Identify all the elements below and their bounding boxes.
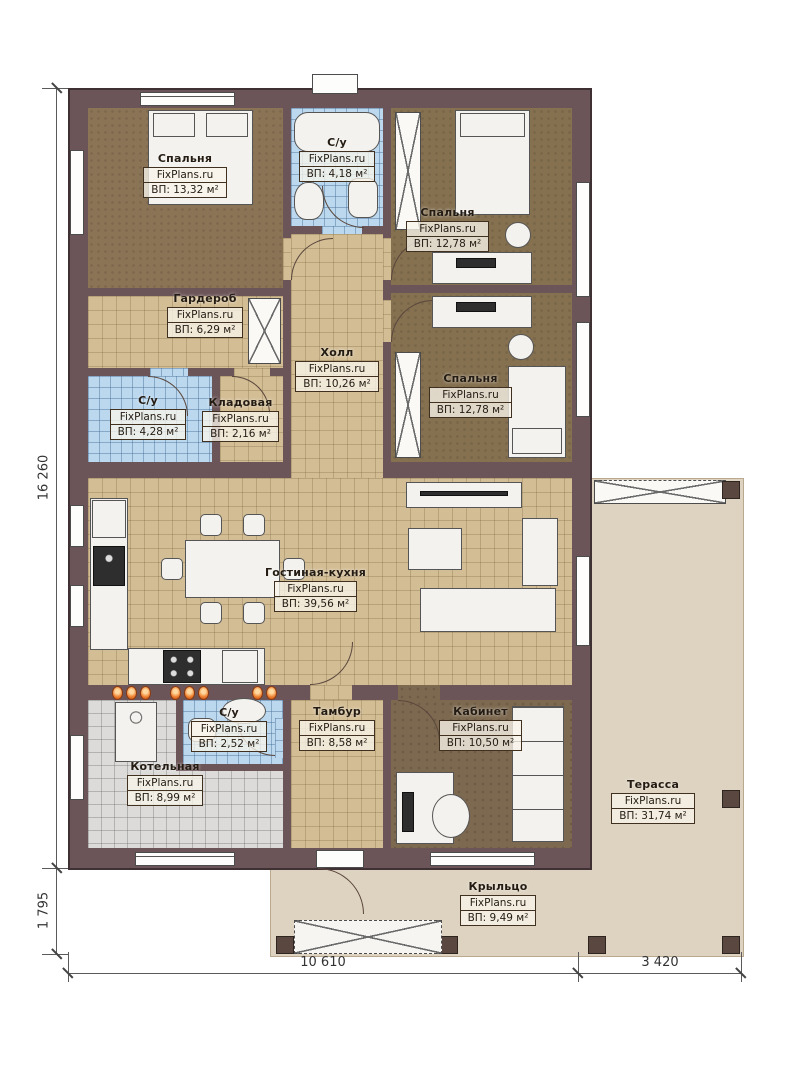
- desk: [432, 296, 532, 328]
- room-area: ВП: 6,29 м²: [168, 323, 243, 337]
- room-area: ВП: 39,56 м²: [275, 597, 357, 611]
- sink: [348, 178, 378, 218]
- radiator: [126, 686, 137, 700]
- door-gap: [283, 238, 291, 280]
- terrace-post: [588, 936, 606, 954]
- watermark: FixPlans.ru: [144, 168, 226, 183]
- watermark: FixPlans.ru: [168, 308, 243, 323]
- room-name: Спальня: [395, 206, 500, 219]
- terrace-door: [576, 556, 590, 646]
- watermark: FixPlans.ru: [407, 222, 489, 237]
- kitchen-sink: [93, 546, 125, 586]
- room-area: ВП: 12,78 м²: [430, 403, 512, 417]
- dim-label-porch-height: 1 795: [37, 871, 52, 951]
- room-label-bath-top: С/у FixPlans.ru ВП: 4,18 м²: [292, 136, 382, 182]
- watermark: FixPlans.ru: [461, 896, 536, 911]
- extension-line: [42, 88, 68, 89]
- watermark: FixPlans.ru: [440, 721, 522, 736]
- monitor: [456, 258, 496, 268]
- room-name: Терасса: [593, 778, 713, 791]
- monitor: [402, 792, 414, 832]
- porch-post: [276, 936, 294, 954]
- window: [576, 182, 590, 297]
- extension-line: [578, 952, 579, 982]
- armchair: [522, 518, 558, 586]
- room-area: ВП: 10,26 м²: [296, 377, 378, 391]
- room-area: ВП: 8,58 м²: [300, 736, 375, 750]
- room-label-hall: Холл FixPlans.ru ВП: 10,26 м²: [290, 346, 384, 392]
- chair: [243, 514, 265, 536]
- dim-label-house-height: 16 260: [37, 438, 52, 518]
- window: [135, 852, 235, 866]
- room-label-storage: Кладовая FixPlans.ru ВП: 2,16 м²: [198, 396, 283, 442]
- dim-label-terrace-width: 3 420: [610, 955, 710, 970]
- room-area: ВП: 10,50 м²: [440, 736, 522, 750]
- terrace-post: [722, 936, 740, 954]
- room-label-office: Кабинет FixPlans.ru ВП: 10,50 м²: [428, 705, 533, 751]
- terrace-post: [722, 481, 740, 499]
- door-gap: [234, 368, 270, 376]
- entrance-door-opening: [316, 850, 364, 868]
- room-name: Котельная: [105, 760, 225, 773]
- chair: [161, 558, 183, 580]
- porch-steps: [294, 920, 442, 954]
- watermark: FixPlans.ru: [192, 722, 267, 737]
- window: [70, 585, 84, 627]
- radiator: [198, 686, 209, 700]
- window: [70, 150, 84, 235]
- door-gap: [275, 718, 283, 758]
- floor-plan: Спальня FixPlans.ru ВП: 13,32 м² С/у Fix…: [0, 0, 792, 1080]
- radiator: [170, 686, 181, 700]
- watermark: FixPlans.ru: [111, 410, 186, 425]
- chimney: [312, 74, 358, 94]
- room-label-living: Гостиная-кухня FixPlans.ru ВП: 39,56 м²: [248, 566, 383, 612]
- room-area: ВП: 4,18 м²: [300, 167, 375, 181]
- room-label-boiler: Котельная FixPlans.ru ВП: 8,99 м²: [105, 760, 225, 806]
- room-name: Спальня: [418, 372, 523, 385]
- boiler-unit: [115, 702, 157, 762]
- room-area: ВП: 31,74 м²: [612, 809, 694, 823]
- pillow: [460, 113, 525, 137]
- watermark: FixPlans.ru: [275, 582, 357, 597]
- chair: [200, 514, 222, 536]
- porch-post: [440, 936, 458, 954]
- radiator: [252, 686, 263, 700]
- room-name: С/у: [185, 706, 273, 719]
- room-label-bath-bottom: С/у FixPlans.ru ВП: 2,52 м²: [185, 706, 273, 752]
- coffee-table: [408, 528, 462, 570]
- terrace-post: [722, 790, 740, 808]
- toilet: [294, 182, 324, 220]
- tv: [420, 491, 508, 496]
- watermark: FixPlans.ru: [612, 794, 694, 809]
- office-chair: [432, 794, 470, 838]
- room-name: Крыльцо: [438, 880, 558, 893]
- door-gap: [398, 685, 440, 700]
- room-label-porch: Крыльцо FixPlans.ru ВП: 9,49 м²: [438, 880, 558, 926]
- room-label-bath-left: С/у FixPlans.ru ВП: 4,28 м²: [103, 394, 193, 440]
- terrace-floor: [578, 478, 744, 957]
- room-name: Кабинет: [428, 705, 533, 718]
- watermark: FixPlans.ru: [296, 362, 378, 377]
- pillow: [153, 113, 195, 137]
- watermark: FixPlans.ru: [128, 776, 203, 791]
- room-area: ВП: 12,78 м²: [407, 237, 489, 251]
- chair: [200, 602, 222, 624]
- room-area: ВП: 2,52 м²: [192, 737, 267, 751]
- pillow: [512, 428, 562, 454]
- room-name: Кладовая: [198, 396, 283, 409]
- room-label-wardrobe: Гардероб FixPlans.ru ВП: 6,29 м²: [145, 292, 265, 338]
- watermark: FixPlans.ru: [300, 721, 375, 736]
- radiator: [266, 686, 277, 700]
- radiator: [140, 686, 151, 700]
- terrace-railing: [594, 480, 726, 504]
- extension-line: [741, 952, 742, 982]
- room-area: ВП: 9,49 м²: [461, 911, 536, 925]
- window: [140, 92, 235, 106]
- stove: [163, 650, 201, 683]
- room-name: Спальня: [125, 152, 245, 165]
- dimension-line-bottom: [68, 973, 742, 974]
- pillow: [206, 113, 248, 137]
- door-gap: [150, 368, 188, 376]
- room-area: ВП: 8,99 м²: [128, 791, 203, 805]
- room-name: Гардероб: [145, 292, 265, 305]
- room-label-vestibule: Тамбур FixPlans.ru ВП: 8,58 м²: [287, 705, 387, 751]
- room-area: ВП: 13,32 м²: [144, 183, 226, 197]
- extension-line: [42, 954, 68, 955]
- room-area: ВП: 2,16 м²: [203, 427, 278, 441]
- sink-unit: [222, 650, 258, 683]
- door-gap: [383, 238, 391, 280]
- room-name: С/у: [292, 136, 382, 149]
- room-name: Холл: [290, 346, 384, 359]
- room-name: Гостиная-кухня: [248, 566, 383, 579]
- fridge: [92, 500, 126, 538]
- room-name: Тамбур: [287, 705, 387, 718]
- radiator: [112, 686, 123, 700]
- watermark: FixPlans.ru: [203, 412, 278, 427]
- room-name: С/у: [103, 394, 193, 407]
- watermark: FixPlans.ru: [300, 152, 375, 167]
- dimension-line-left-porch: [56, 868, 57, 955]
- room-label-bedroom1: Спальня FixPlans.ru ВП: 13,32 м²: [125, 152, 245, 198]
- dimension-line-left: [56, 88, 57, 868]
- extension-line: [68, 952, 69, 982]
- room-label-bedroom2: Спальня FixPlans.ru ВП: 12,78 м²: [395, 206, 500, 252]
- door-gap: [310, 685, 352, 700]
- monitor: [456, 302, 496, 312]
- window: [70, 735, 84, 800]
- desk: [432, 252, 532, 284]
- door-gap: [383, 300, 391, 342]
- watermark: FixPlans.ru: [430, 388, 512, 403]
- room-label-bedroom3: Спальня FixPlans.ru ВП: 12,78 м²: [418, 372, 523, 418]
- plant-pot: [505, 222, 531, 248]
- sofa: [420, 588, 556, 632]
- extension-line: [42, 868, 68, 869]
- room-label-terrace: Терасса FixPlans.ru ВП: 31,74 м²: [593, 778, 713, 824]
- window: [430, 852, 535, 866]
- dim-label-house-width: 10 610: [273, 955, 373, 970]
- window: [576, 322, 590, 417]
- room-area: ВП: 4,28 м²: [111, 425, 186, 439]
- window: [70, 505, 84, 547]
- plant-pot: [508, 334, 534, 360]
- radiator: [184, 686, 195, 700]
